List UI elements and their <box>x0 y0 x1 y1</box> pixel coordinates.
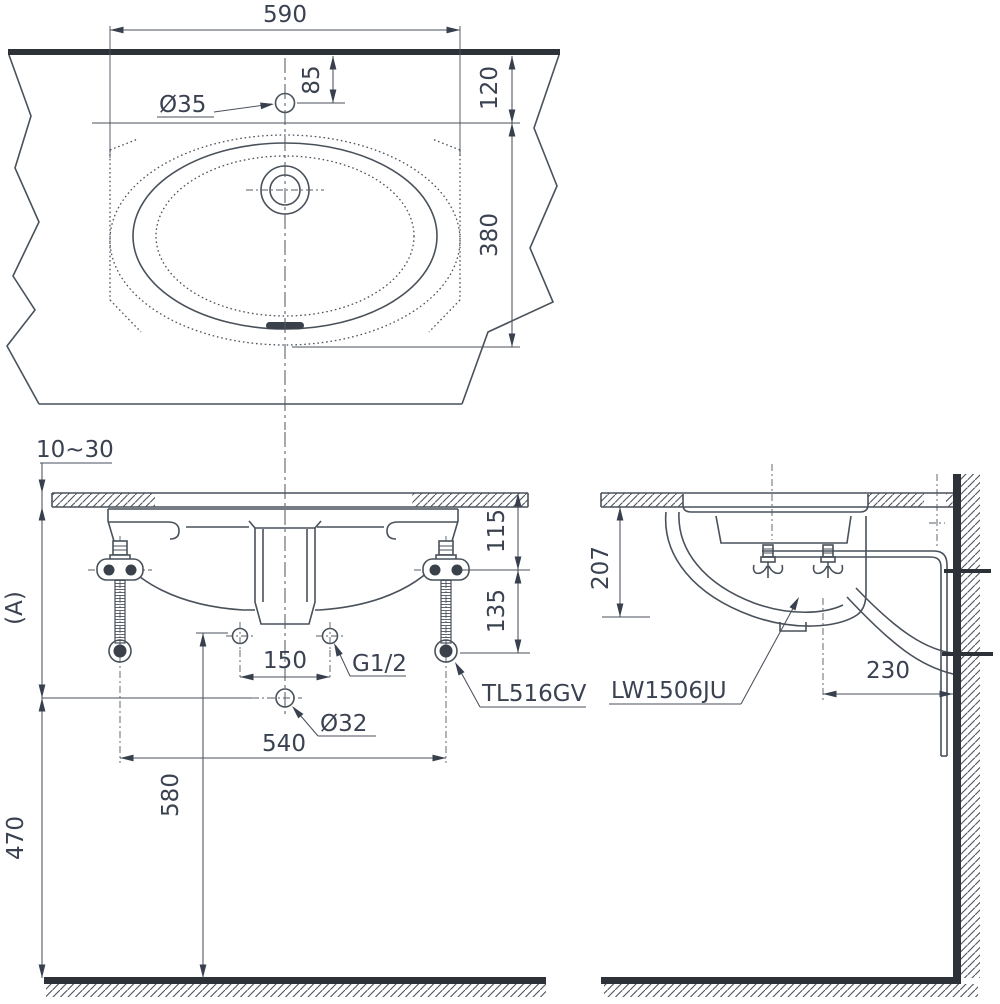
dim-580: 580 <box>158 633 228 978</box>
side-counter <box>601 493 953 507</box>
left-break-line <box>7 55 39 404</box>
front-basin <box>108 509 458 624</box>
dim-207: 207 <box>588 507 650 617</box>
front-view: 10~30 (A) 470 580 150 <box>2 432 587 997</box>
dim-590-label: 590 <box>263 2 307 28</box>
dim-380-label: 380 <box>477 213 503 257</box>
front-floor <box>44 977 546 984</box>
dim-230-label: 230 <box>866 658 910 684</box>
faucet-hole-dia-label: Ø35 <box>159 92 206 118</box>
installation-drawing: 590 85 120 380 Ø35 <box>0 0 1000 1000</box>
dim-left-column: 10~30 (A) 470 <box>2 437 276 978</box>
faucet-model-label: TL516GV <box>481 681 587 707</box>
front-floor-hatch <box>46 984 546 997</box>
technical-drawing-page: 590 85 120 380 Ø35 <box>0 0 1000 1000</box>
wall-hatch <box>961 474 980 978</box>
supply-valve-left <box>88 536 152 763</box>
counter-front-edge <box>8 49 560 55</box>
dim-A-label: (A) <box>2 591 28 625</box>
dim-135-label: 135 <box>484 589 510 633</box>
side-floor-hatch <box>604 984 978 997</box>
drain-hole-dia-label: Ø32 <box>320 711 367 737</box>
dim-10-30-label: 10~30 <box>36 437 114 463</box>
side-pipes <box>762 551 953 756</box>
callout-faucet-hole: Ø35 <box>157 92 274 118</box>
dim-85: 85 <box>297 56 345 103</box>
callout-basin-model: LW1506JU <box>609 595 802 704</box>
dim-115-label: 115 <box>484 509 510 553</box>
supply-thread-label: G1/2 <box>352 651 407 677</box>
side-view: 207 230 LW1506JU <box>588 464 993 997</box>
dim-85-label: 85 <box>299 65 325 94</box>
callout-supply-thread: G1/2 <box>331 642 407 677</box>
side-floor <box>601 977 961 984</box>
dim-120-label: 120 <box>477 66 503 110</box>
dim-230: 230 <box>823 658 953 697</box>
dim-470-label: 470 <box>3 816 29 860</box>
dim-150-label: 150 <box>263 648 307 674</box>
dim-580-label: 580 <box>158 773 184 817</box>
wall-supply-centerline <box>929 474 945 546</box>
basin-model-label: LW1506JU <box>611 678 727 704</box>
dim-380: 380 <box>292 123 520 347</box>
dim-207-label: 207 <box>588 546 614 590</box>
front-counter <box>52 493 528 507</box>
dim-540-label: 540 <box>262 731 306 757</box>
plan-view: 590 85 120 380 Ø35 <box>7 2 560 430</box>
callout-faucet-model: TL516GV <box>452 660 587 707</box>
wall-section <box>953 474 961 984</box>
dim-540: 540 <box>120 731 446 761</box>
side-faucet-shanks <box>754 545 843 578</box>
dim-115-135: 115 135 <box>460 493 530 653</box>
